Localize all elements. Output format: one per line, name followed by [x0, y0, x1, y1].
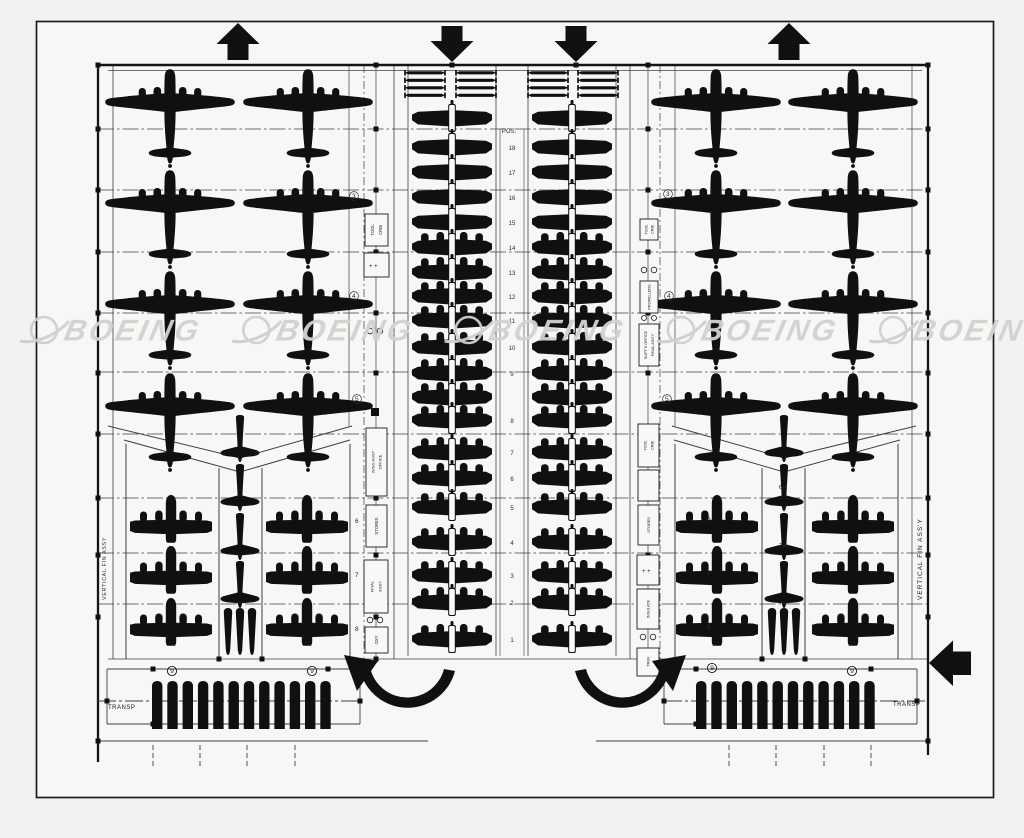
- svg-text:6A: 6A: [779, 484, 788, 491]
- svg-text:BOEING: BOEING: [274, 315, 417, 348]
- svg-text:CRIB: CRIB: [651, 225, 655, 235]
- svg-text:7: 7: [707, 570, 711, 577]
- svg-text:FINAL ASS'Y: FINAL ASS'Y: [651, 333, 655, 356]
- svg-text:STORES: STORES: [647, 517, 651, 533]
- svg-text:VERTICAL FIN ASSY: VERTICAL FIN ASSY: [102, 537, 108, 600]
- svg-text:TRANSP: TRANSP: [893, 702, 920, 708]
- svg-text:PROPELLERS: PROPELLERS: [648, 284, 652, 310]
- svg-text:WING ASSY: WING ASSY: [371, 450, 376, 473]
- svg-text:13: 13: [509, 271, 516, 277]
- svg-text:TOOL: TOOL: [645, 224, 649, 234]
- svg-text:OFFICE: OFFICE: [378, 454, 383, 469]
- svg-text:5: 5: [665, 396, 669, 403]
- svg-text:7: 7: [355, 572, 359, 579]
- svg-text:6: 6: [707, 516, 711, 523]
- svg-text:+ +: + +: [369, 264, 378, 270]
- svg-text:+ +: + +: [642, 569, 651, 575]
- svg-text:6: 6: [355, 518, 359, 525]
- svg-text:ASSY: ASSY: [378, 581, 383, 592]
- svg-text:9: 9: [310, 668, 314, 675]
- svg-text:7A: 7A: [779, 543, 788, 550]
- svg-text:8: 8: [355, 626, 359, 633]
- svg-text:POS.: POS.: [502, 129, 517, 135]
- svg-text:BOEING: BOEING: [698, 315, 841, 348]
- svg-text:9: 9: [710, 665, 714, 672]
- svg-text:TOOL: TOOL: [644, 440, 648, 450]
- svg-text:4: 4: [667, 293, 671, 300]
- svg-text:VERTICAL FIN ASS'Y: VERTICAL FIN ASS'Y: [917, 518, 924, 600]
- svg-text:TRANSP: TRANSP: [108, 705, 135, 711]
- svg-text:9: 9: [850, 668, 854, 675]
- svg-text:4: 4: [352, 293, 356, 300]
- svg-text:CRIB: CRIB: [378, 225, 383, 235]
- svg-text:16: 16: [509, 196, 516, 202]
- svg-text:CRIB: CRIB: [651, 441, 655, 451]
- svg-text:OXY: OXY: [374, 635, 379, 644]
- svg-text:FINAL: FINAL: [370, 580, 375, 592]
- svg-text:3: 3: [352, 193, 356, 200]
- svg-text:TRIM: TRIM: [647, 657, 651, 666]
- svg-text:3: 3: [666, 191, 670, 198]
- svg-text:TOOL: TOOL: [370, 224, 375, 236]
- svg-text:14: 14: [509, 246, 516, 252]
- svg-text:9: 9: [170, 668, 174, 675]
- svg-text:STORES: STORES: [374, 517, 379, 534]
- svg-text:5: 5: [355, 396, 359, 403]
- svg-text:18: 18: [509, 146, 516, 152]
- svg-text:15: 15: [509, 221, 516, 227]
- svg-text:8: 8: [707, 624, 711, 631]
- svg-text:12: 12: [509, 295, 516, 301]
- svg-text:BOEING: BOEING: [486, 315, 629, 348]
- svg-text:BOEING: BOEING: [910, 315, 1024, 348]
- svg-text:INSULATE: INSULATE: [647, 599, 651, 618]
- svg-text:17: 17: [509, 171, 516, 177]
- svg-text:BOEING: BOEING: [61, 315, 204, 348]
- svg-text:SUPT'S OFFICE: SUPT'S OFFICE: [644, 330, 648, 359]
